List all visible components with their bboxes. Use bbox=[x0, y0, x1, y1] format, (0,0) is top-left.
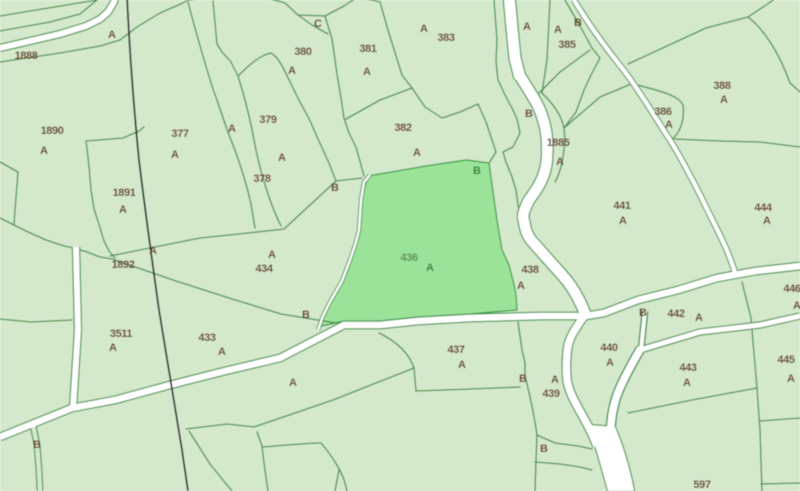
svg-text:B: B bbox=[473, 165, 481, 177]
svg-text:437: 437 bbox=[447, 344, 464, 356]
svg-text:446: 446 bbox=[783, 283, 800, 295]
svg-text:445: 445 bbox=[777, 354, 794, 366]
svg-text:B: B bbox=[519, 373, 527, 385]
svg-text:382: 382 bbox=[394, 122, 411, 134]
svg-text:438: 438 bbox=[521, 264, 538, 276]
svg-text:444: 444 bbox=[754, 202, 772, 214]
svg-text:A: A bbox=[119, 204, 127, 216]
svg-text:377: 377 bbox=[171, 128, 188, 140]
svg-text:A: A bbox=[523, 21, 531, 33]
svg-text:A: A bbox=[787, 373, 795, 385]
svg-text:379: 379 bbox=[259, 114, 276, 126]
svg-text:A: A bbox=[278, 152, 286, 164]
svg-text:436: 436 bbox=[400, 252, 417, 264]
svg-text:A: A bbox=[793, 300, 800, 312]
svg-text:434: 434 bbox=[255, 263, 273, 275]
svg-text:A: A bbox=[720, 94, 728, 106]
svg-text:1890: 1890 bbox=[41, 125, 64, 137]
svg-text:439: 439 bbox=[542, 388, 559, 400]
svg-text:A: A bbox=[517, 280, 525, 292]
svg-text:A: A bbox=[683, 377, 691, 389]
svg-text:A: A bbox=[171, 149, 179, 161]
svg-text:A: A bbox=[695, 312, 703, 324]
svg-text:A: A bbox=[413, 147, 421, 159]
svg-text:B: B bbox=[302, 309, 310, 321]
svg-text:A: A bbox=[268, 249, 276, 261]
svg-text:A: A bbox=[109, 342, 117, 354]
svg-text:385: 385 bbox=[558, 39, 575, 51]
svg-text:B: B bbox=[639, 307, 647, 319]
svg-text:1892: 1892 bbox=[112, 259, 135, 271]
svg-text:A: A bbox=[554, 24, 562, 36]
svg-text:380: 380 bbox=[294, 46, 311, 58]
svg-text:A: A bbox=[619, 215, 627, 227]
svg-text:A: A bbox=[149, 245, 157, 257]
svg-text:B: B bbox=[33, 439, 41, 451]
svg-text:A: A bbox=[426, 262, 434, 274]
svg-text:A: A bbox=[606, 357, 614, 369]
svg-text:A: A bbox=[218, 346, 226, 358]
svg-text:A: A bbox=[551, 374, 559, 386]
svg-text:433: 433 bbox=[198, 332, 215, 344]
svg-text:A: A bbox=[288, 65, 296, 77]
svg-text:1888: 1888 bbox=[15, 50, 38, 62]
svg-text:597: 597 bbox=[693, 479, 710, 491]
svg-text:A: A bbox=[420, 23, 428, 35]
svg-text:A: A bbox=[458, 359, 466, 371]
svg-text:A: A bbox=[289, 377, 297, 389]
svg-text:386: 386 bbox=[654, 106, 671, 118]
svg-text:A: A bbox=[108, 29, 116, 41]
svg-text:381: 381 bbox=[359, 43, 376, 55]
svg-text:3511: 3511 bbox=[110, 328, 133, 340]
svg-text:441: 441 bbox=[613, 200, 630, 212]
svg-text:A: A bbox=[556, 156, 564, 168]
svg-text:B: B bbox=[540, 443, 548, 455]
svg-text:C: C bbox=[314, 18, 322, 30]
svg-text:B: B bbox=[331, 182, 339, 194]
svg-text:B: B bbox=[525, 108, 533, 120]
svg-text:A: A bbox=[363, 66, 371, 78]
svg-text:443: 443 bbox=[679, 362, 696, 374]
svg-text:1891: 1891 bbox=[113, 187, 136, 199]
svg-text:B: B bbox=[574, 17, 582, 29]
svg-text:A: A bbox=[40, 145, 48, 157]
svg-text:440: 440 bbox=[600, 342, 617, 354]
svg-text:A: A bbox=[763, 215, 771, 227]
svg-text:383: 383 bbox=[437, 32, 454, 44]
svg-text:442: 442 bbox=[667, 308, 684, 320]
svg-text:378: 378 bbox=[253, 173, 270, 185]
svg-text:A: A bbox=[665, 119, 673, 131]
svg-text:388: 388 bbox=[713, 80, 730, 92]
svg-text:A: A bbox=[228, 123, 236, 135]
svg-text:1885: 1885 bbox=[547, 137, 570, 149]
